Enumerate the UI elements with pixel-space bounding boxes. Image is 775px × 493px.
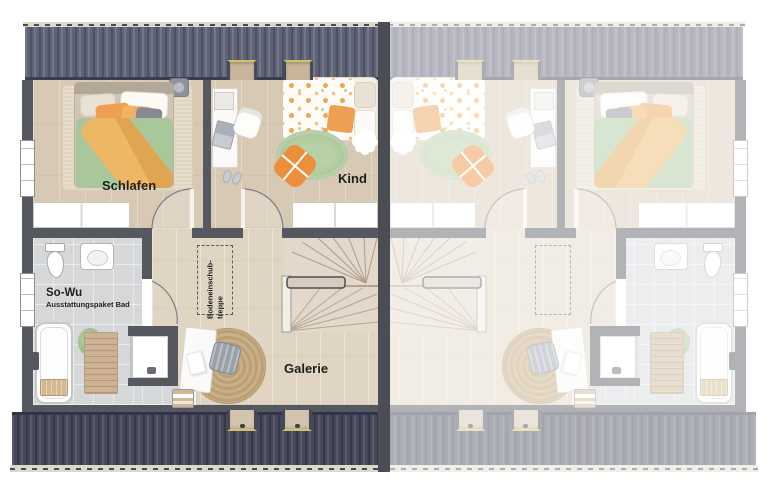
dormer-top-2 [455, 60, 485, 80]
wall-bath-top [616, 228, 735, 238]
shower-wall-top [128, 326, 178, 336]
stairs-handrail [423, 277, 481, 288]
loft-hatch-label: Bodeneinschub- treppe [205, 241, 225, 319]
wall-between-bedrooms [557, 80, 565, 228]
loft-hatch-outline: Bodeneinschub- treppe [197, 245, 233, 315]
lamp-icon [523, 424, 528, 428]
towel-shelf [574, 389, 596, 408]
wall-bath-side [142, 238, 152, 279]
door-swing-bath [591, 281, 616, 324]
loft-hatch-label-line2: treppe [215, 241, 225, 319]
lamp-icon [295, 424, 300, 428]
door-swing-schlafen [576, 189, 616, 229]
unit-left: Bodeneinschub- treppe Schlafen Kind So-W… [20, 0, 390, 493]
exterior-wall-left [22, 80, 33, 412]
towel-shelf [172, 389, 194, 408]
door-swing-schlafen [152, 189, 192, 229]
party-wall [378, 22, 390, 472]
dormer-bottom-2 [456, 410, 486, 431]
wall-bath-side [616, 238, 626, 279]
wall-hall-mid [525, 228, 576, 238]
wall-bottom [390, 405, 735, 412]
shower-wall-top [590, 326, 640, 336]
door-swing-bath [152, 281, 177, 324]
loft-hatch-outline: Bodeneinschub- treppe [535, 245, 571, 315]
door-swing-kind [243, 189, 283, 229]
shower-wall-right [590, 336, 600, 378]
wall-hall-mid [192, 228, 243, 238]
door-swing-kind [485, 189, 525, 229]
loft-hatch-label-line1: Bodeneinschub- [205, 241, 215, 319]
floor-plan: Bodeneinschub- treppe Schlafen Kind So-W… [0, 0, 775, 493]
dormer-top-1 [511, 60, 541, 80]
wall-between-bedrooms [203, 80, 211, 228]
exterior-wall-left [735, 80, 746, 412]
wall-bottom [33, 405, 378, 412]
dormer-bottom-1 [227, 410, 257, 431]
room-label-schlafen: Schlafen [102, 178, 156, 193]
shower-wall-bottom [590, 378, 640, 386]
unit-right: Bodeneinschub- treppe Schlafen Kind So-W… [378, 0, 748, 493]
shower-wall-right [168, 336, 178, 378]
wall-stairs-top [390, 228, 486, 238]
shower-wall-bottom [128, 378, 178, 386]
dormer-top-2 [283, 60, 313, 80]
wall-stairs-top [282, 228, 378, 238]
dormer-top-1 [227, 60, 257, 80]
lamp-icon [240, 424, 245, 428]
wall-bath-top [33, 228, 152, 238]
room-label-bad: So-Wu Ausstattungspaket Bad [46, 287, 130, 309]
dormer-bottom-1 [511, 410, 541, 431]
window-bedroom [733, 140, 748, 197]
bad-label-sub: Ausstattungspaket Bad [46, 300, 130, 309]
room-label-galerie: Galerie [284, 361, 328, 376]
window-bedroom [20, 140, 35, 197]
window-bathroom [733, 273, 748, 327]
lamp-icon [468, 424, 473, 428]
stairs-handrail [287, 277, 345, 288]
bad-label-main: So-Wu [46, 287, 130, 299]
room-label-kind: Kind [338, 171, 367, 186]
dormer-bottom-2 [282, 410, 312, 431]
window-bathroom [20, 273, 35, 327]
